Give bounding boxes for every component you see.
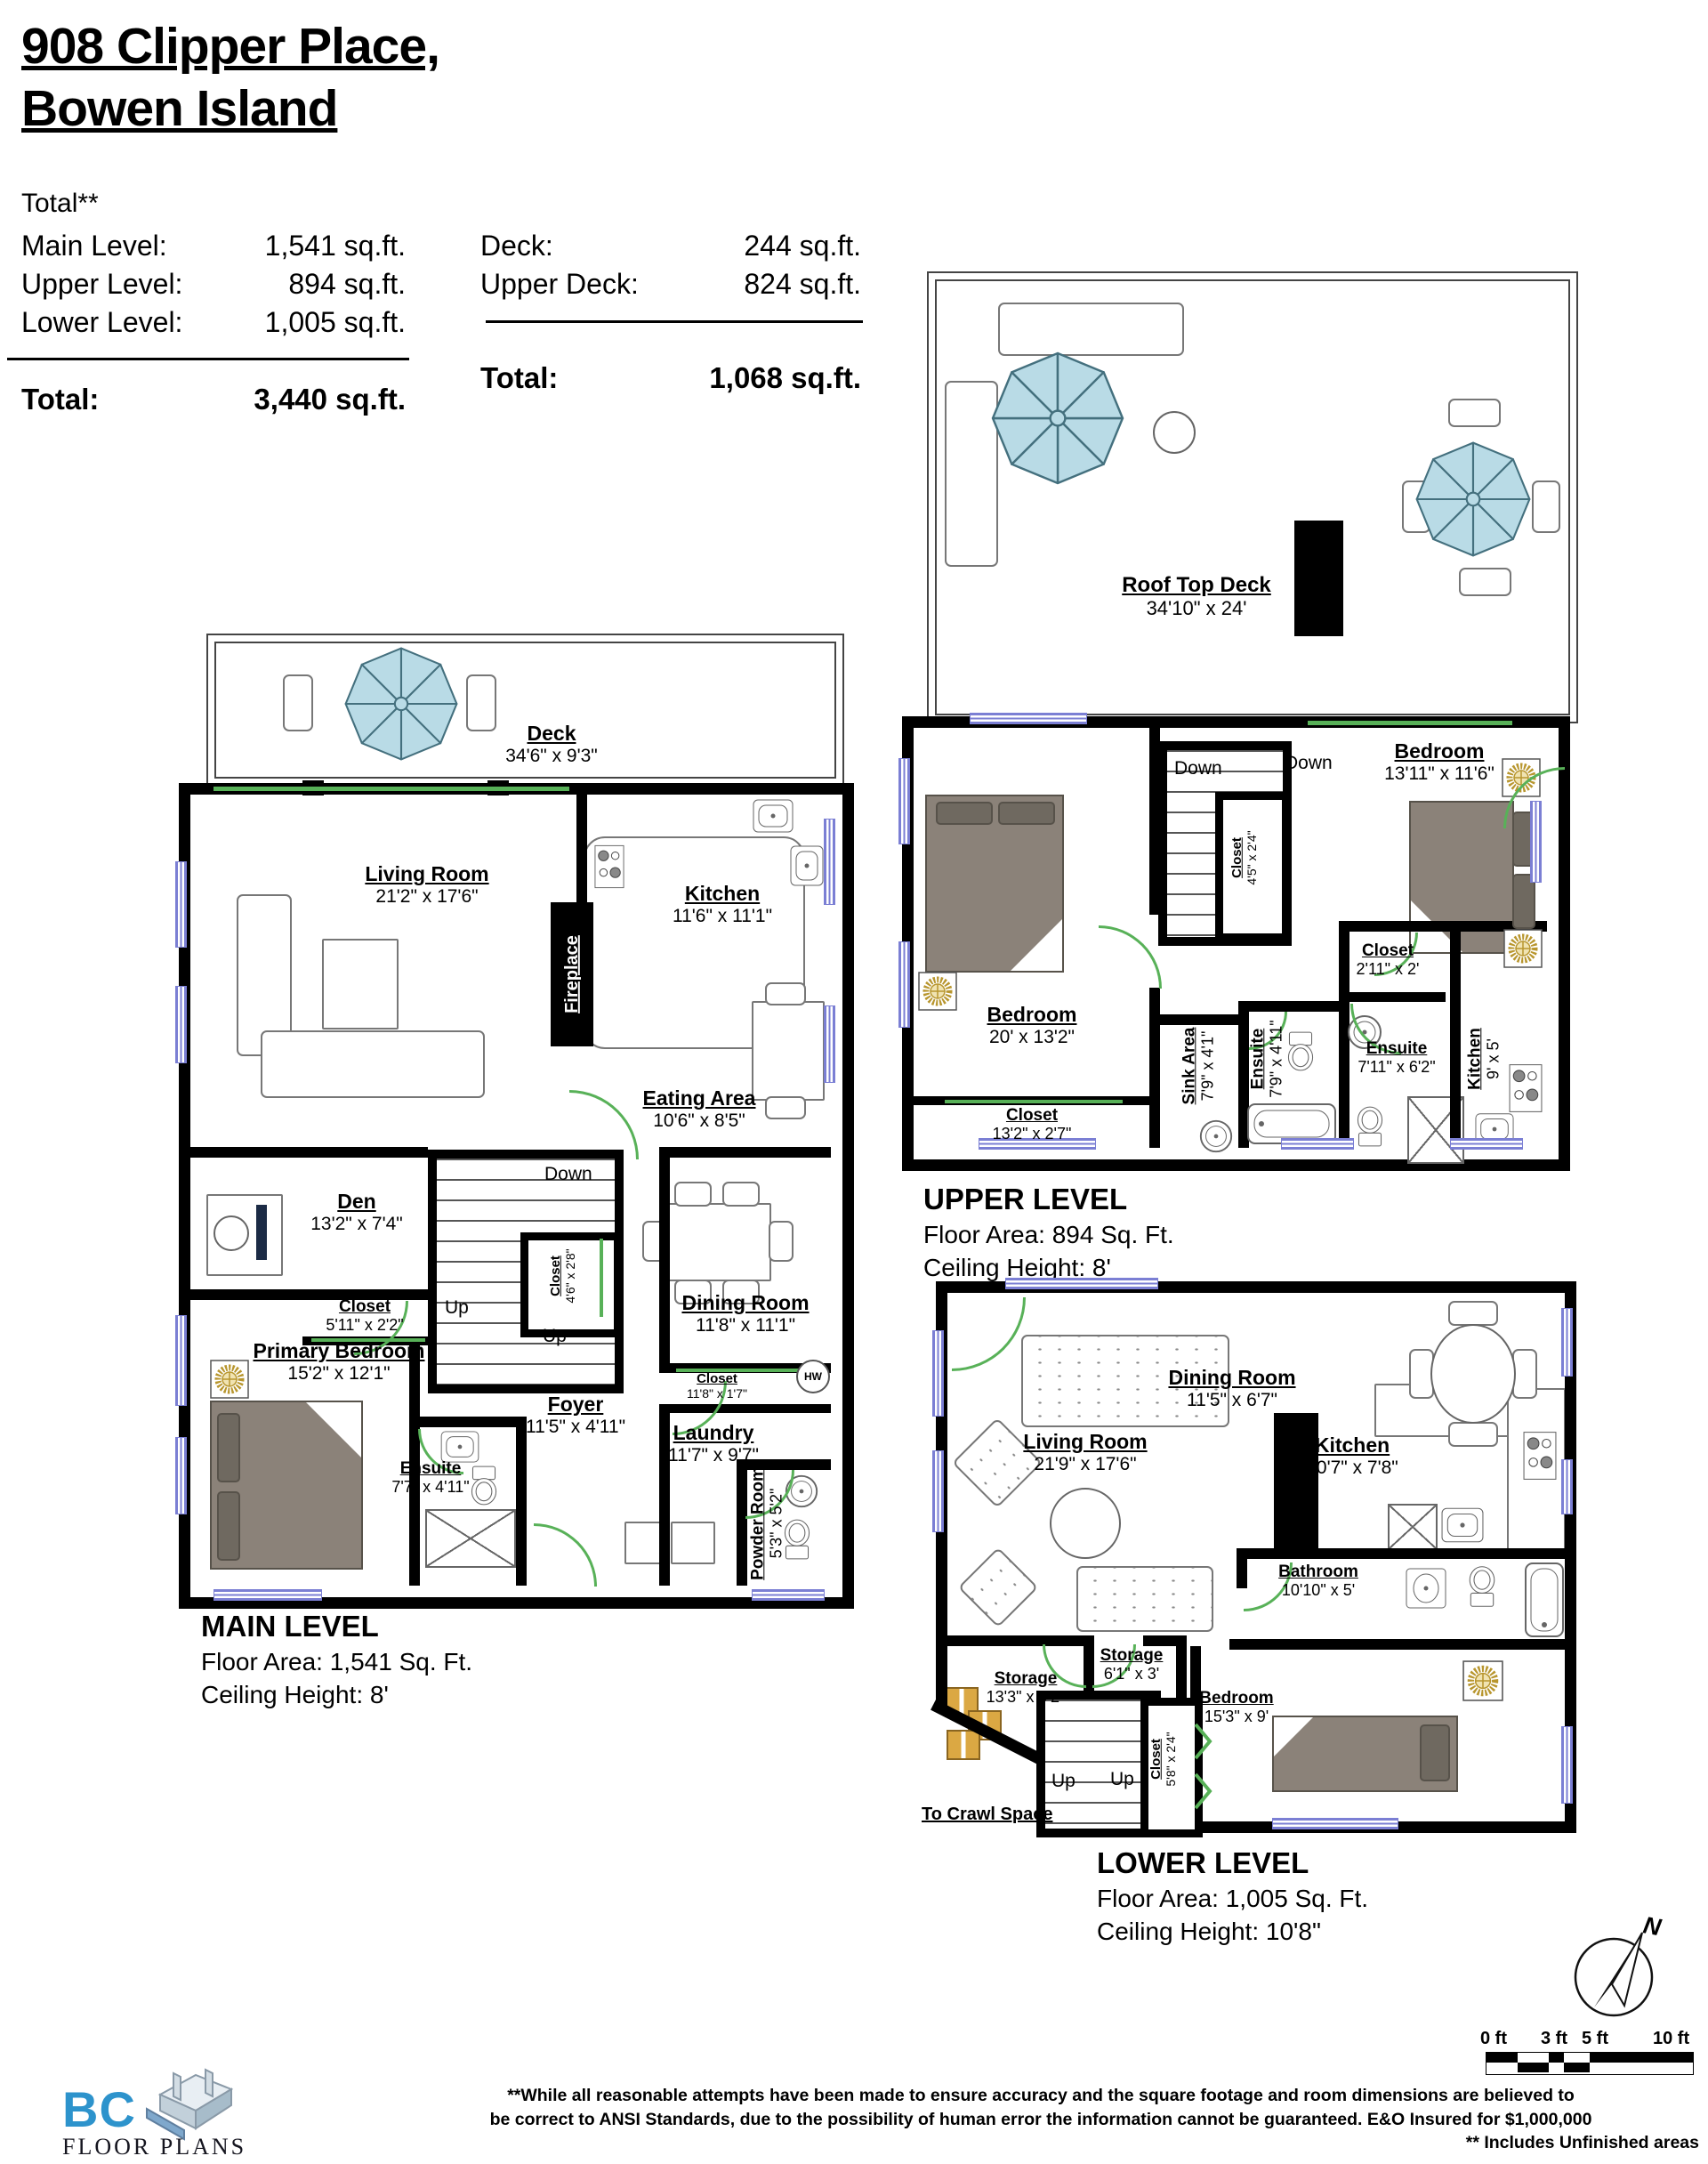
closet-door-line	[945, 1100, 1123, 1103]
room-label-eating-area: Eating Area 10'6" x 8'5"	[643, 1087, 756, 1131]
chair	[283, 674, 313, 731]
room-label-ensuite-main: Ensuite 7'7" x 4'11"	[391, 1459, 469, 1496]
room-label-living-main: Living Room 21'2" x 17'6"	[365, 863, 488, 907]
chair	[765, 982, 806, 1005]
window	[824, 819, 835, 905]
room-label-storage-small: Storage 6'1" x 3'	[1100, 1646, 1164, 1683]
roof-chimney	[1294, 521, 1343, 636]
wall	[1229, 1639, 1576, 1650]
pillow	[217, 1413, 240, 1482]
room-label-closet-stairs: Closet 4'6" x 2'8"	[549, 1248, 577, 1303]
summary-row: Upper Level: 894 sq.ft.	[21, 268, 406, 301]
toilet-icon	[781, 1518, 813, 1561]
monitor	[256, 1205, 267, 1260]
storage-box	[947, 1730, 980, 1760]
floor-plan-page: 908 Clipper Place, Bowen Island Total** …	[0, 0, 1708, 2164]
window	[932, 1330, 944, 1417]
wall	[409, 1417, 527, 1427]
chair	[769, 1221, 794, 1262]
chair	[466, 674, 496, 731]
scale-label-3: 3 ft	[1541, 2029, 1567, 2049]
summary-label: Upper Level:	[21, 268, 182, 301]
toilet-icon	[1285, 1030, 1317, 1073]
ceiling-light-icon	[918, 972, 957, 1011]
summary-value: 894 sq.ft.	[288, 268, 406, 301]
toilet-icon	[468, 1465, 500, 1507]
scale-label-5: 5 ft	[1582, 2029, 1608, 2049]
disclaimer-line-3: ** Includes Unfinished areas	[383, 2131, 1699, 2155]
window	[1561, 1726, 1573, 1804]
logo-illustration	[120, 2057, 262, 2146]
room-label-closet-bed: Closet 13'2" x 2'7"	[993, 1106, 1072, 1143]
window	[175, 1315, 187, 1406]
room-label-foyer: Foyer 11'5" x 4'11"	[526, 1393, 625, 1437]
desk-chair	[213, 1215, 249, 1251]
armchair	[958, 1547, 1039, 1628]
eating-table	[752, 1001, 825, 1101]
room-label-closet-lower: Closet 5'8" x 2'4"	[1149, 1732, 1178, 1786]
summary-row: Deck: 244 sq.ft.	[480, 230, 861, 262]
fireplace-box: Fireplace	[551, 902, 593, 1046]
summary-row: Upper Deck: 824 sq.ft.	[480, 268, 861, 301]
window	[1281, 1138, 1354, 1150]
stairs-up-label: Up	[543, 1326, 567, 1347]
window	[1005, 1278, 1158, 1289]
scale-label-10: 10 ft	[1653, 2029, 1689, 2049]
summary-total-row: Total: 1,068 sq.ft.	[480, 361, 861, 395]
wall	[1450, 932, 1461, 1148]
divider	[7, 358, 409, 360]
pillow	[936, 802, 993, 825]
bifold-door-icon	[1194, 1772, 1213, 1810]
round-table	[1050, 1488, 1121, 1559]
sink-icon	[1197, 1118, 1235, 1155]
room-label-dining-main: Dining Room 11'8" x 11'1"	[681, 1292, 809, 1336]
room-label-bedroom-left: Bedroom 20' x 13'2"	[987, 1004, 1077, 1047]
chair	[722, 1182, 760, 1207]
summary-label: Lower Level:	[21, 306, 182, 339]
window	[1450, 1138, 1523, 1150]
window	[1272, 1818, 1398, 1829]
chimney-box	[1274, 1413, 1318, 1548]
patio-umbrella-icon	[1414, 440, 1532, 558]
window	[824, 1005, 835, 1083]
title-line-1: 908 Clipper Place,	[21, 16, 439, 78]
wall	[190, 1147, 428, 1158]
stairs-up-label: Up	[1051, 1771, 1076, 1792]
room-label-dining-lower: Dining Room 11'5" x 6'7"	[1168, 1367, 1295, 1410]
sink-icon	[753, 799, 794, 833]
summary-label: Deck:	[480, 230, 553, 262]
pillow	[998, 802, 1055, 825]
summary-total-row: Total: 3,440 sq.ft.	[21, 383, 406, 416]
stairs-down-label: Down	[1174, 758, 1222, 779]
window	[175, 986, 187, 1063]
window	[213, 1589, 322, 1601]
window	[898, 758, 910, 844]
door-arc	[952, 1297, 1026, 1371]
stairs-up-label: Up	[445, 1297, 469, 1319]
ceiling-light-icon	[1503, 929, 1543, 968]
toilet-icon	[1466, 1564, 1498, 1609]
ceiling-light-icon	[1462, 1660, 1503, 1701]
window	[932, 1450, 944, 1532]
dishwasher	[1388, 1504, 1438, 1550]
main-level-caption: MAIN LEVEL Floor Area: 1,541 Sq. Ft. Cei…	[201, 1607, 472, 1711]
toilet-icon	[1354, 1105, 1386, 1148]
bifold-door-icon	[1194, 1723, 1213, 1760]
wall	[1149, 988, 1160, 1148]
stove-icon	[1509, 1063, 1543, 1113]
patio-umbrella-icon	[343, 646, 459, 762]
chair	[765, 1096, 806, 1119]
sink-icon	[790, 845, 824, 886]
room-label-laundry: Laundry 11'7" x 9'7"	[668, 1422, 759, 1466]
window	[175, 861, 187, 948]
wall	[576, 795, 587, 902]
summary-value: 1,541 sq.ft.	[265, 230, 406, 262]
room-label-closet-small: Closet 2'11" x 2'	[1357, 941, 1420, 978]
stairs-up-label: Up	[1110, 1769, 1134, 1790]
patio-umbrella-icon	[990, 351, 1125, 486]
dining-table	[1430, 1324, 1516, 1424]
compass-north-label: N	[1641, 1911, 1664, 1941]
wall	[1339, 992, 1446, 1002]
room-label-bathroom: Bathroom 10'10" x 5'	[1278, 1562, 1358, 1599]
window	[175, 1437, 187, 1514]
room-label-roof-deck: Roof Top Deck 34'10" x 24'	[1122, 574, 1271, 620]
room-label-den: Den 13'2" x 7'4"	[310, 1191, 403, 1234]
sliding-door	[213, 787, 569, 791]
upper-level-caption: UPPER LEVEL Floor Area: 894 Sq. Ft. Ceil…	[923, 1180, 1174, 1284]
room-label-main-deck: Deck 34'6" x 9'3"	[505, 723, 598, 766]
lower-level-caption: LOWER LEVEL Floor Area: 1,005 Sq. Ft. Ce…	[1097, 1844, 1368, 1948]
room-label-ensuite-right: Ensuite 7'11" x 6'2"	[1358, 1039, 1435, 1076]
room-label-closet-stairs-upper: Closet 4'5" x 2'4"	[1230, 830, 1259, 884]
sofa	[261, 1030, 485, 1098]
page-title: 908 Clipper Place, Bowen Island	[21, 16, 439, 140]
coffee-table	[322, 939, 399, 1030]
summary-value: 3,440 sq.ft.	[254, 383, 406, 416]
pillow	[217, 1491, 240, 1561]
room-label-kitchen-lower: Kitchen 10'7" x 7'8"	[1306, 1434, 1398, 1478]
summary-row: Main Level: 1,541 sq.ft.	[21, 230, 406, 262]
room-label-primary-bedroom: Primary Bedroom 15'2" x 12'1"	[253, 1340, 424, 1384]
sliding-door	[1308, 721, 1512, 725]
closet-door-line	[600, 1239, 603, 1317]
summary-label: Main Level:	[21, 230, 167, 262]
disclaimer: **While all reasonable attempts have bee…	[383, 2084, 1699, 2155]
stairs-down-label: Down	[1285, 753, 1333, 774]
chair	[1459, 568, 1511, 596]
room-label-ensuite-left: Ensuite 7'9" x 4'11"	[1248, 1020, 1285, 1097]
room-label-bedroom-right: Bedroom 13'11" x 11'6"	[1384, 740, 1494, 784]
summary-value: 1,005 sq.ft.	[265, 306, 406, 339]
wall	[1149, 1014, 1249, 1025]
side-table	[1153, 411, 1196, 454]
title-line-2: Bowen Island	[21, 78, 439, 141]
hot-water-tank: HW	[796, 1360, 830, 1393]
summary-value: 1,068 sq.ft.	[709, 361, 861, 395]
wall	[516, 1417, 527, 1586]
room-label-closet-hall: Closet 11'8" x 1'7"	[687, 1372, 747, 1401]
scale-bar	[1486, 2052, 1694, 2075]
sink-icon	[1441, 1506, 1484, 1545]
wall	[1237, 1548, 1576, 1559]
scale-label-0: 0 ft	[1480, 2029, 1507, 2049]
compass-icon: N	[1567, 1911, 1667, 2020]
room-label-powder-room: Powder Room 5'3" x 5'2"	[748, 1466, 785, 1580]
window	[898, 941, 910, 1028]
disclaimer-line-2: be correct to ANSI Standards, due to the…	[383, 2108, 1699, 2132]
shower	[425, 1509, 516, 1568]
summary-label: Total:	[480, 361, 558, 395]
summary-row: Lower Level: 1,005 sq.ft.	[21, 306, 406, 339]
room-label-living-lower: Living Room 21'9" x 17'6"	[1023, 1431, 1147, 1474]
window	[1561, 1459, 1573, 1514]
stove-icon	[594, 844, 624, 890]
room-label-closet-den: Closet 5'11" x 2'2"	[326, 1297, 403, 1334]
disclaimer-line-1: **While all reasonable attempts have bee…	[383, 2084, 1699, 2108]
room-label-sink-area: Sink Area 7'9" x 4'1"	[1180, 1028, 1216, 1105]
room-label-fireplace: Fireplace	[562, 935, 582, 1013]
room-label-storage-big: Storage 13'3" x 9'2"	[987, 1669, 1066, 1706]
summary-label: Upper Deck:	[480, 268, 639, 301]
wall	[1249, 1001, 1339, 1012]
chair	[1448, 1301, 1498, 1326]
window	[1561, 1308, 1573, 1377]
stove-icon	[1523, 1431, 1557, 1481]
dryer	[671, 1522, 715, 1564]
divider	[486, 320, 863, 323]
chair	[1512, 1349, 1537, 1399]
stairs-down-label: Down	[544, 1164, 592, 1185]
wall	[1143, 1635, 1187, 1646]
room-label-kitchen-upper: Kitchen 9' x 5'	[1465, 1028, 1502, 1090]
bathtub-icon	[1525, 1562, 1564, 1637]
chair	[1532, 480, 1560, 533]
crawl-space-label: To Crawl Space	[922, 1805, 1052, 1825]
summary-label: Total:	[21, 383, 99, 416]
chair	[1448, 399, 1501, 427]
summary-value: 824 sq.ft.	[744, 268, 861, 301]
total-heading: Total**	[21, 189, 99, 219]
ceiling-light-icon	[210, 1360, 249, 1399]
window	[752, 1589, 825, 1601]
room-label-kitchen-main: Kitchen 11'6" x 11'1"	[673, 883, 772, 926]
chair	[1448, 1422, 1498, 1447]
wall	[659, 1147, 670, 1363]
sofa	[1076, 1566, 1213, 1632]
sofa	[998, 303, 1184, 356]
chair	[674, 1182, 712, 1207]
summary-value: 244 sq.ft.	[744, 230, 861, 262]
window	[970, 713, 1087, 724]
room-label-bedroom-lower: Bedroom 15'3" x 9'	[1199, 1689, 1273, 1725]
dining-table	[663, 1203, 771, 1281]
wall	[659, 1147, 831, 1158]
pillow	[1420, 1724, 1450, 1781]
sink-icon	[1406, 1568, 1446, 1609]
